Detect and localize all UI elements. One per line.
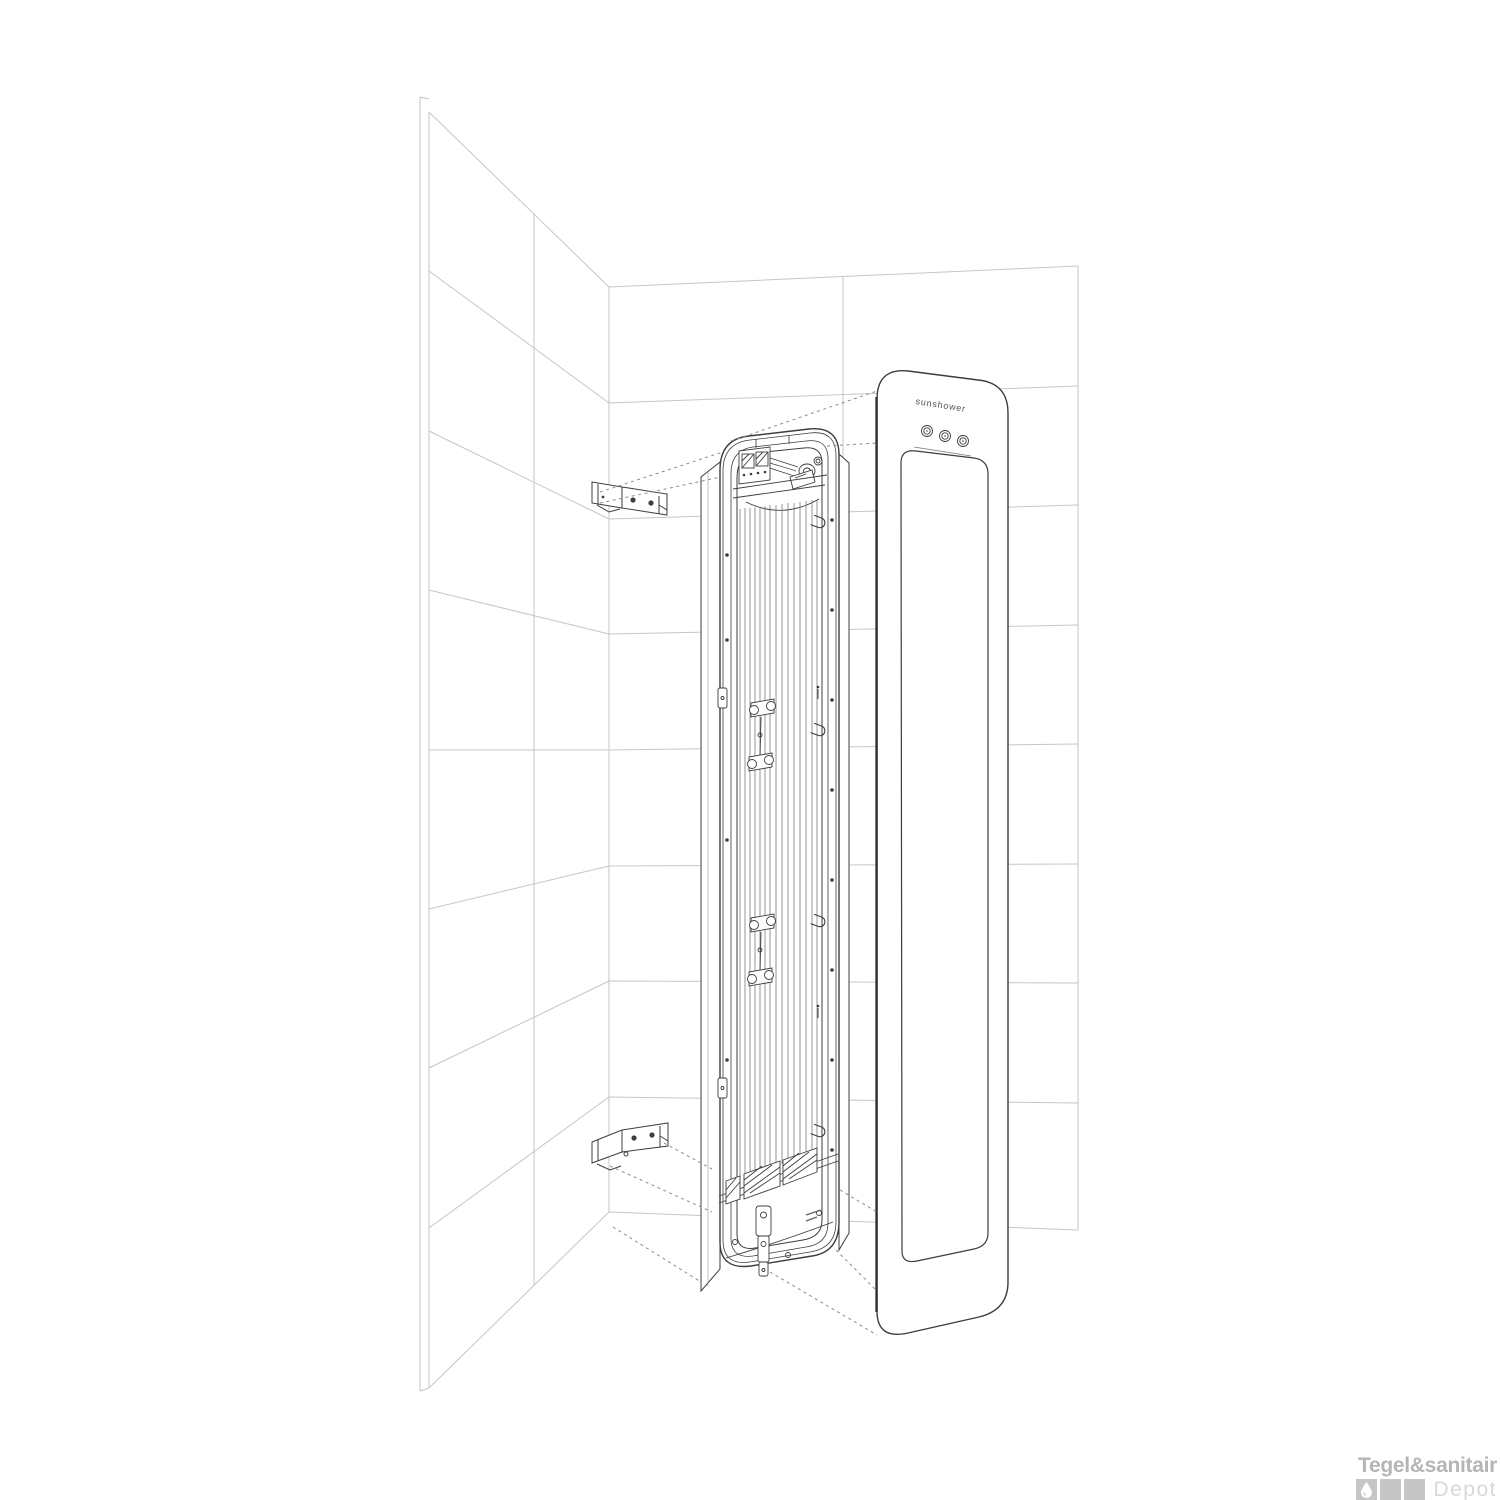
- blank-square: [1404, 1479, 1425, 1500]
- bracket-hole: [624, 1152, 628, 1156]
- brand-logo-row: Depot: [1356, 1479, 1497, 1500]
- motor-cap: [814, 457, 822, 465]
- bracket-screw: [631, 1135, 636, 1140]
- housing-left-depth-face: [701, 462, 720, 1291]
- holder-cap: [748, 975, 757, 984]
- holder-cap: [767, 917, 776, 926]
- terminal-dot: [764, 471, 767, 474]
- wall-mounting-bracket-bottom: [592, 1123, 668, 1170]
- recessed-housing: [701, 429, 849, 1291]
- holder-cap: [765, 971, 774, 980]
- rail-pin-dot: [817, 686, 820, 689]
- bracket-arm: [592, 1130, 622, 1163]
- water-drop-icon: [1356, 1479, 1377, 1500]
- bracket-plate: [622, 1123, 668, 1152]
- holder-cap: [750, 706, 759, 715]
- installation-diagram: sunshower: [0, 0, 1500, 1500]
- bracket-screw: [648, 500, 653, 505]
- holder-cap: [765, 756, 774, 765]
- terminal-dot: [750, 473, 753, 476]
- brand-name: Tegel&sanitair: [1356, 1455, 1497, 1477]
- tiled-left-wall: [420, 97, 609, 1391]
- brand-watermark: Tegel&sanitair Depot: [1356, 1455, 1497, 1500]
- rail-pin-dot: [817, 1005, 820, 1008]
- bracket-arm: [592, 482, 622, 508]
- wall-mounting-bracket-top: [592, 482, 667, 515]
- holder-cap: [748, 760, 757, 769]
- product-diagram-canvas: sunshower: [0, 0, 1500, 1500]
- terminal-dot: [743, 474, 746, 477]
- holder-cap: [750, 921, 759, 930]
- bracket-pin: [602, 496, 605, 499]
- housing-outer-rim: [720, 429, 839, 1267]
- housing-right-depth-face: [839, 454, 849, 1250]
- brand-suffix: Depot: [1433, 1479, 1497, 1500]
- bracket-screw: [649, 1132, 654, 1137]
- holder-cap: [767, 702, 776, 711]
- bracket-plate: [622, 487, 667, 515]
- left-wall-edge: [420, 97, 429, 1391]
- front-panel: sunshower: [877, 371, 1009, 1335]
- bracket-screw: [630, 497, 635, 502]
- left-wall-tile-joints: [429, 271, 609, 1228]
- blank-square: [1380, 1479, 1401, 1500]
- terminal-dot: [757, 472, 760, 475]
